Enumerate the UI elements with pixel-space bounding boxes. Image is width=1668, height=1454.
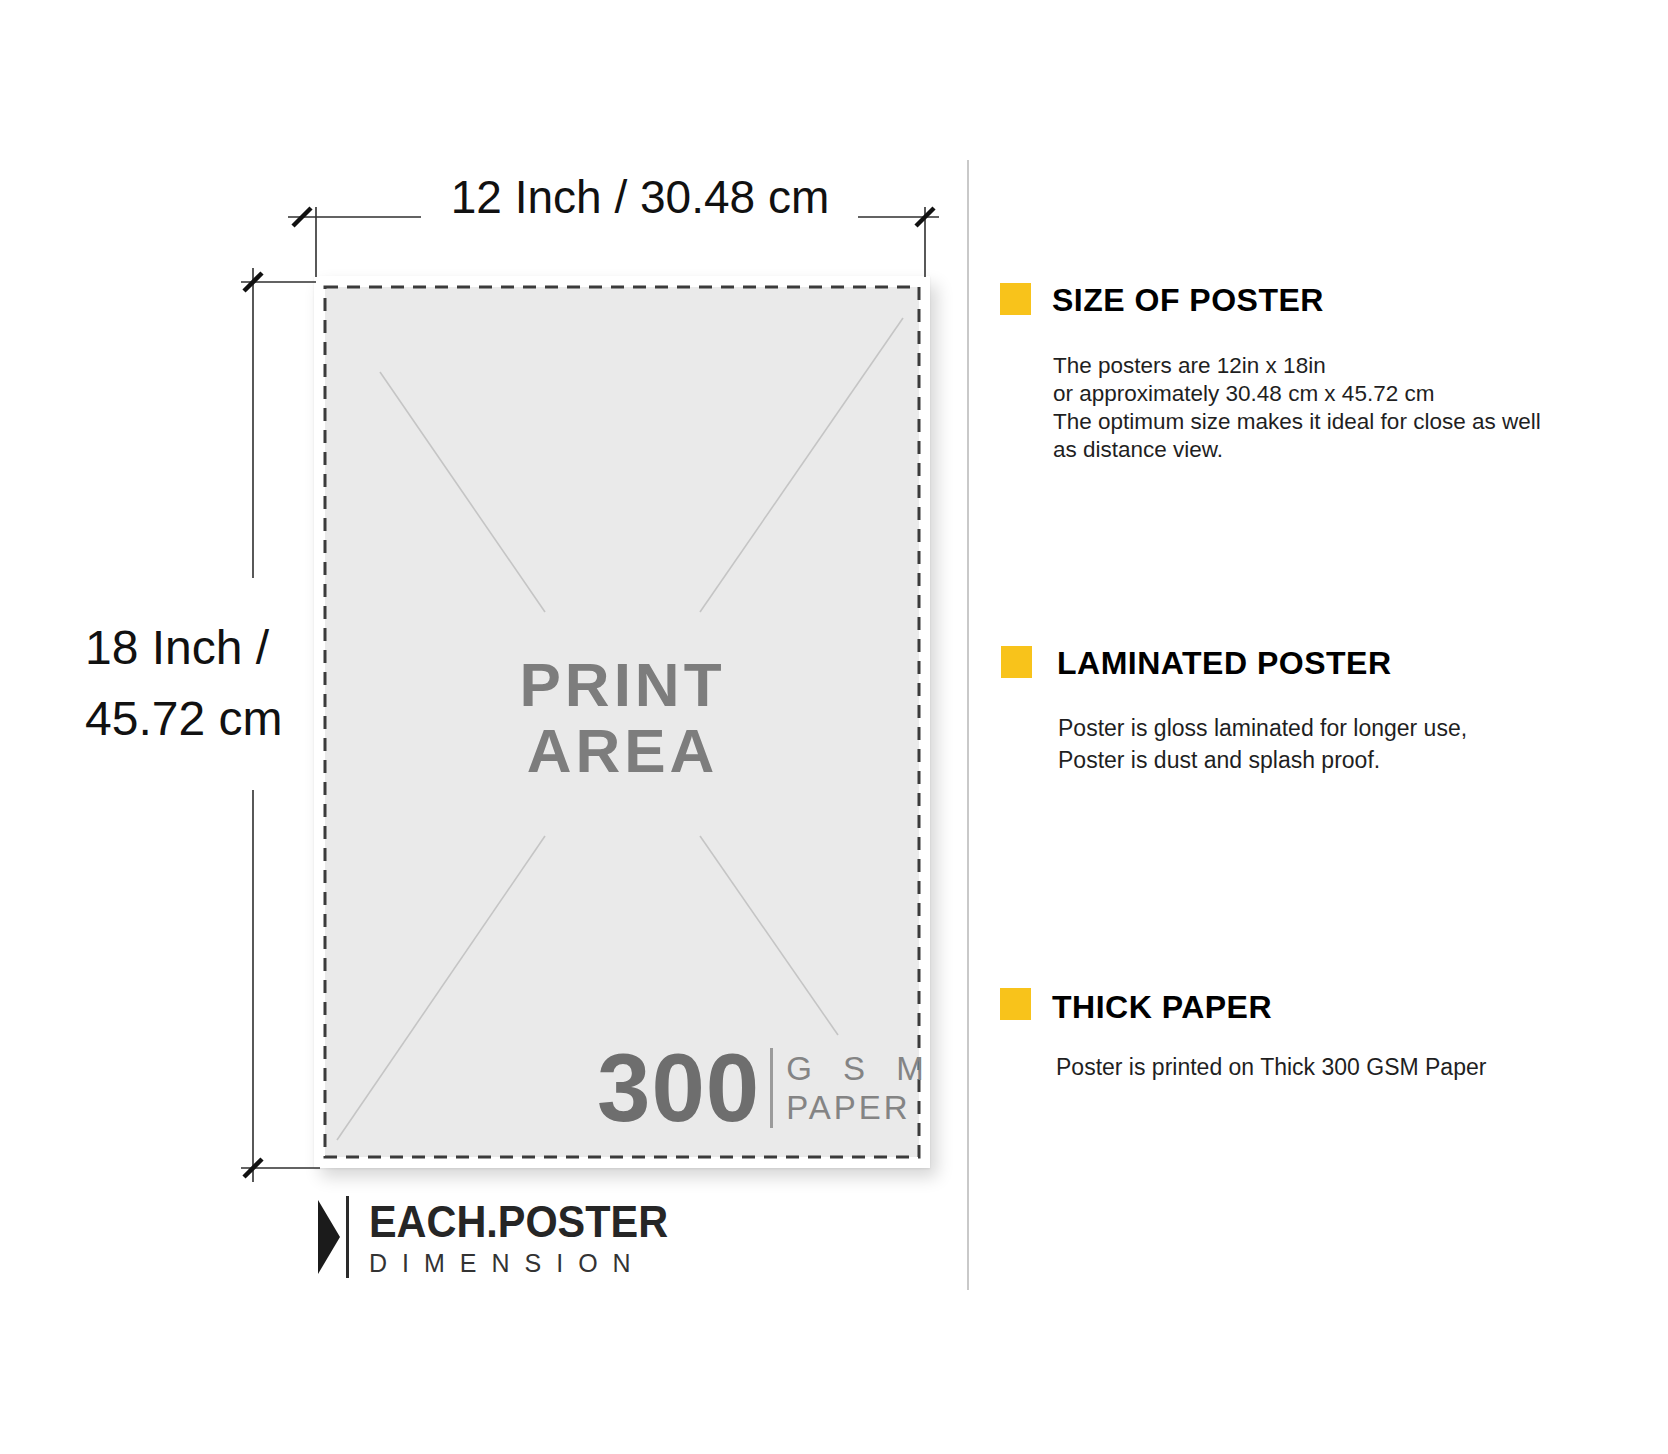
accent-square-icon [1000, 283, 1031, 315]
accent-square-icon [1000, 988, 1031, 1020]
print-area-line2: AREA [460, 718, 785, 784]
body-line: as distance view. [1053, 436, 1541, 464]
left-dimension-line1: 18 Inch / [85, 612, 315, 683]
body-line: Poster is printed on Thick 300 GSM Paper [1056, 1052, 1486, 1082]
section-heading: LAMINATED POSTER [1057, 645, 1392, 682]
top-dimension-label: 12 Inch / 30.48 cm [420, 172, 860, 222]
logo-subtitle: DIMENSION [369, 1250, 694, 1276]
logo-divider-bar [346, 1196, 349, 1278]
panel-divider-line [967, 160, 969, 1290]
print-area-label: PRINT AREA [460, 652, 785, 784]
body-line: Poster is dust and splash proof. [1058, 744, 1467, 776]
paper-weight-badge: 300 G S M PAPER [597, 1042, 935, 1134]
section-body: Poster is gloss laminated for longer use… [1058, 712, 1467, 776]
paper-weight-unit-gsm: G S M [786, 1049, 935, 1088]
accent-square-icon [1001, 646, 1032, 678]
paper-weight-separator [770, 1048, 773, 1128]
body-line: Poster is gloss laminated for longer use… [1058, 712, 1467, 744]
body-line: The posters are 12in x 18in [1053, 352, 1541, 380]
paper-weight-unit-paper: PAPER [786, 1088, 935, 1127]
left-dimension-line2: 45.72 cm [85, 683, 315, 754]
left-dimension-label: 18 Inch / 45.72 cm [85, 612, 315, 754]
poster-dimension-infographic: 12 Inch / 30.48 cm 18 Inch / 45.72 cm PR… [0, 0, 1668, 1454]
section-body: Poster is printed on Thick 300 GSM Paper [1056, 1052, 1486, 1082]
logo-text: EACH.POSTER DIMENSION [369, 1199, 694, 1276]
print-area-line1: PRINT [460, 652, 785, 718]
section-heading: SIZE OF POSTER [1052, 282, 1324, 319]
each-poster-dimension-logo: EACH.POSTER DIMENSION [318, 1196, 694, 1278]
logo-triangle-icon [318, 1200, 340, 1274]
section-body: The posters are 12in x 18in or approxima… [1053, 352, 1541, 464]
paper-weight-unit: G S M PAPER [786, 1049, 935, 1127]
body-line: The optimum size makes it ideal for clos… [1053, 408, 1541, 436]
paper-weight-value: 300 [597, 1042, 760, 1134]
logo-title: EACH.POSTER [369, 1199, 668, 1244]
body-line: or approximately 30.48 cm x 45.72 cm [1053, 380, 1541, 408]
section-heading: THICK PAPER [1052, 989, 1272, 1026]
